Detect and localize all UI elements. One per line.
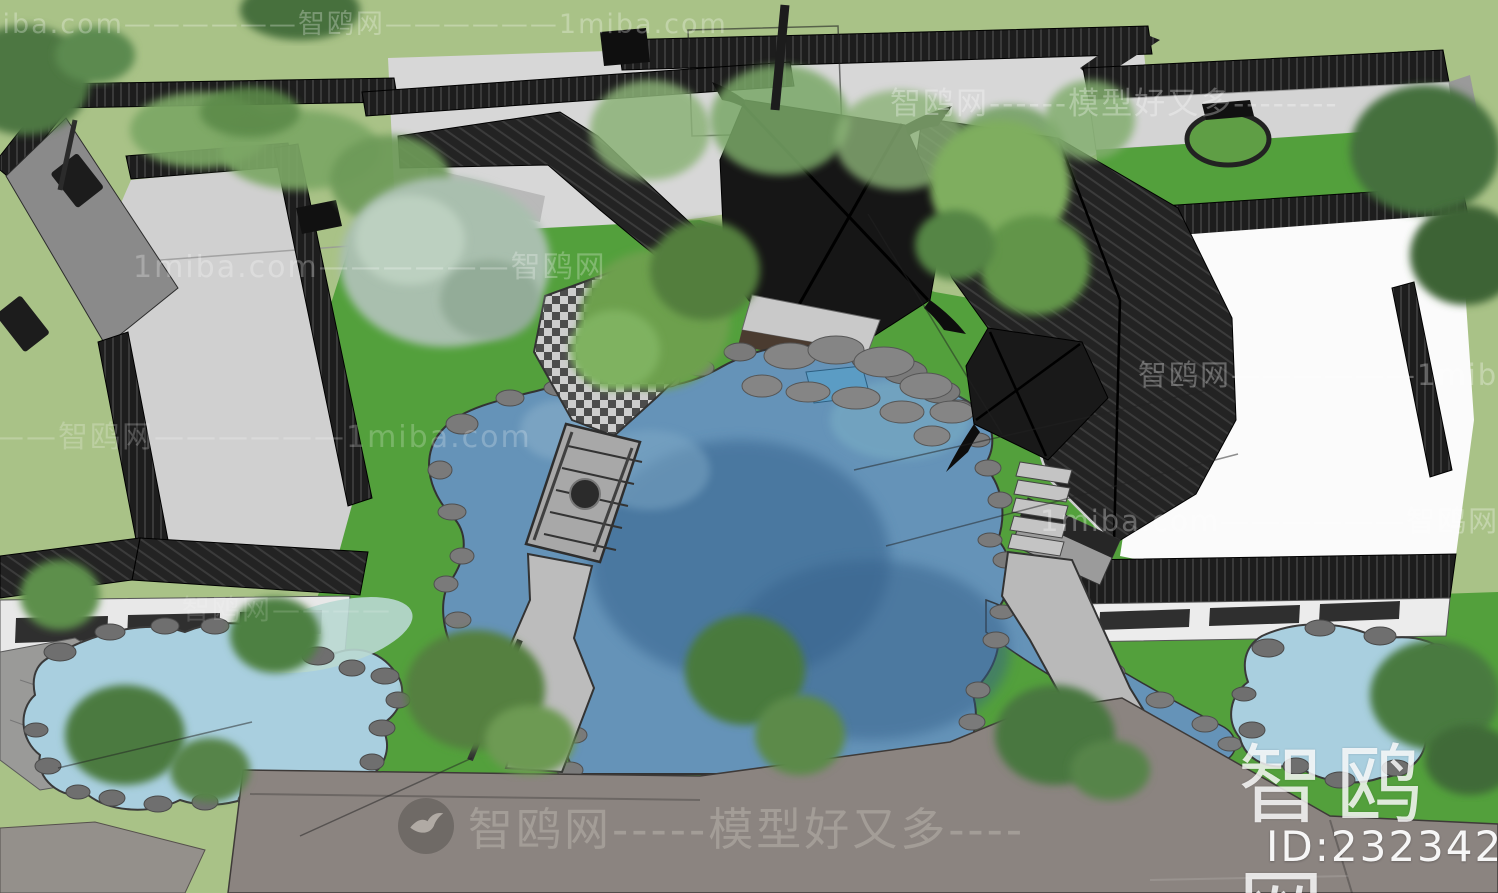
tree-canopy bbox=[170, 738, 250, 802]
tree-canopy bbox=[650, 220, 760, 320]
model-id: ID:232342964 bbox=[1266, 822, 1498, 871]
right-building-eave bbox=[1076, 554, 1456, 604]
bridge-medallion bbox=[570, 479, 600, 509]
bamboo-grove bbox=[1045, 80, 1135, 160]
big-tree-canopy bbox=[440, 260, 540, 340]
east-steps bbox=[1008, 462, 1072, 556]
site-watermark-footer: 智鸥网-----模型好又多---- bbox=[398, 793, 1025, 858]
pine-canopy bbox=[1350, 85, 1498, 215]
tree-canopy bbox=[915, 210, 995, 280]
tree-canopy bbox=[755, 695, 845, 775]
garden-model-screenshot: 1miba.com——————智鸥网——————1miba.com 智鸥网---… bbox=[0, 0, 1498, 893]
moon-gate-opening bbox=[1187, 113, 1269, 165]
tree-canopy bbox=[20, 560, 100, 630]
tree-canopy bbox=[65, 685, 185, 785]
tree-canopy bbox=[230, 597, 320, 673]
tree-canopy bbox=[1070, 740, 1150, 800]
bamboo-hedge bbox=[200, 87, 300, 137]
tree-canopy bbox=[485, 705, 575, 775]
pine-canopy bbox=[55, 27, 135, 83]
big-tree-canopy bbox=[355, 195, 465, 285]
north-gate-cap bbox=[600, 28, 650, 66]
tree-canopy bbox=[570, 310, 660, 390]
site-logo-bird-icon bbox=[398, 798, 454, 854]
tree-canopy bbox=[980, 215, 1090, 315]
site-watermark-text: 智鸥网-----模型好又多---- bbox=[468, 793, 1025, 858]
bamboo-grove bbox=[590, 80, 710, 180]
